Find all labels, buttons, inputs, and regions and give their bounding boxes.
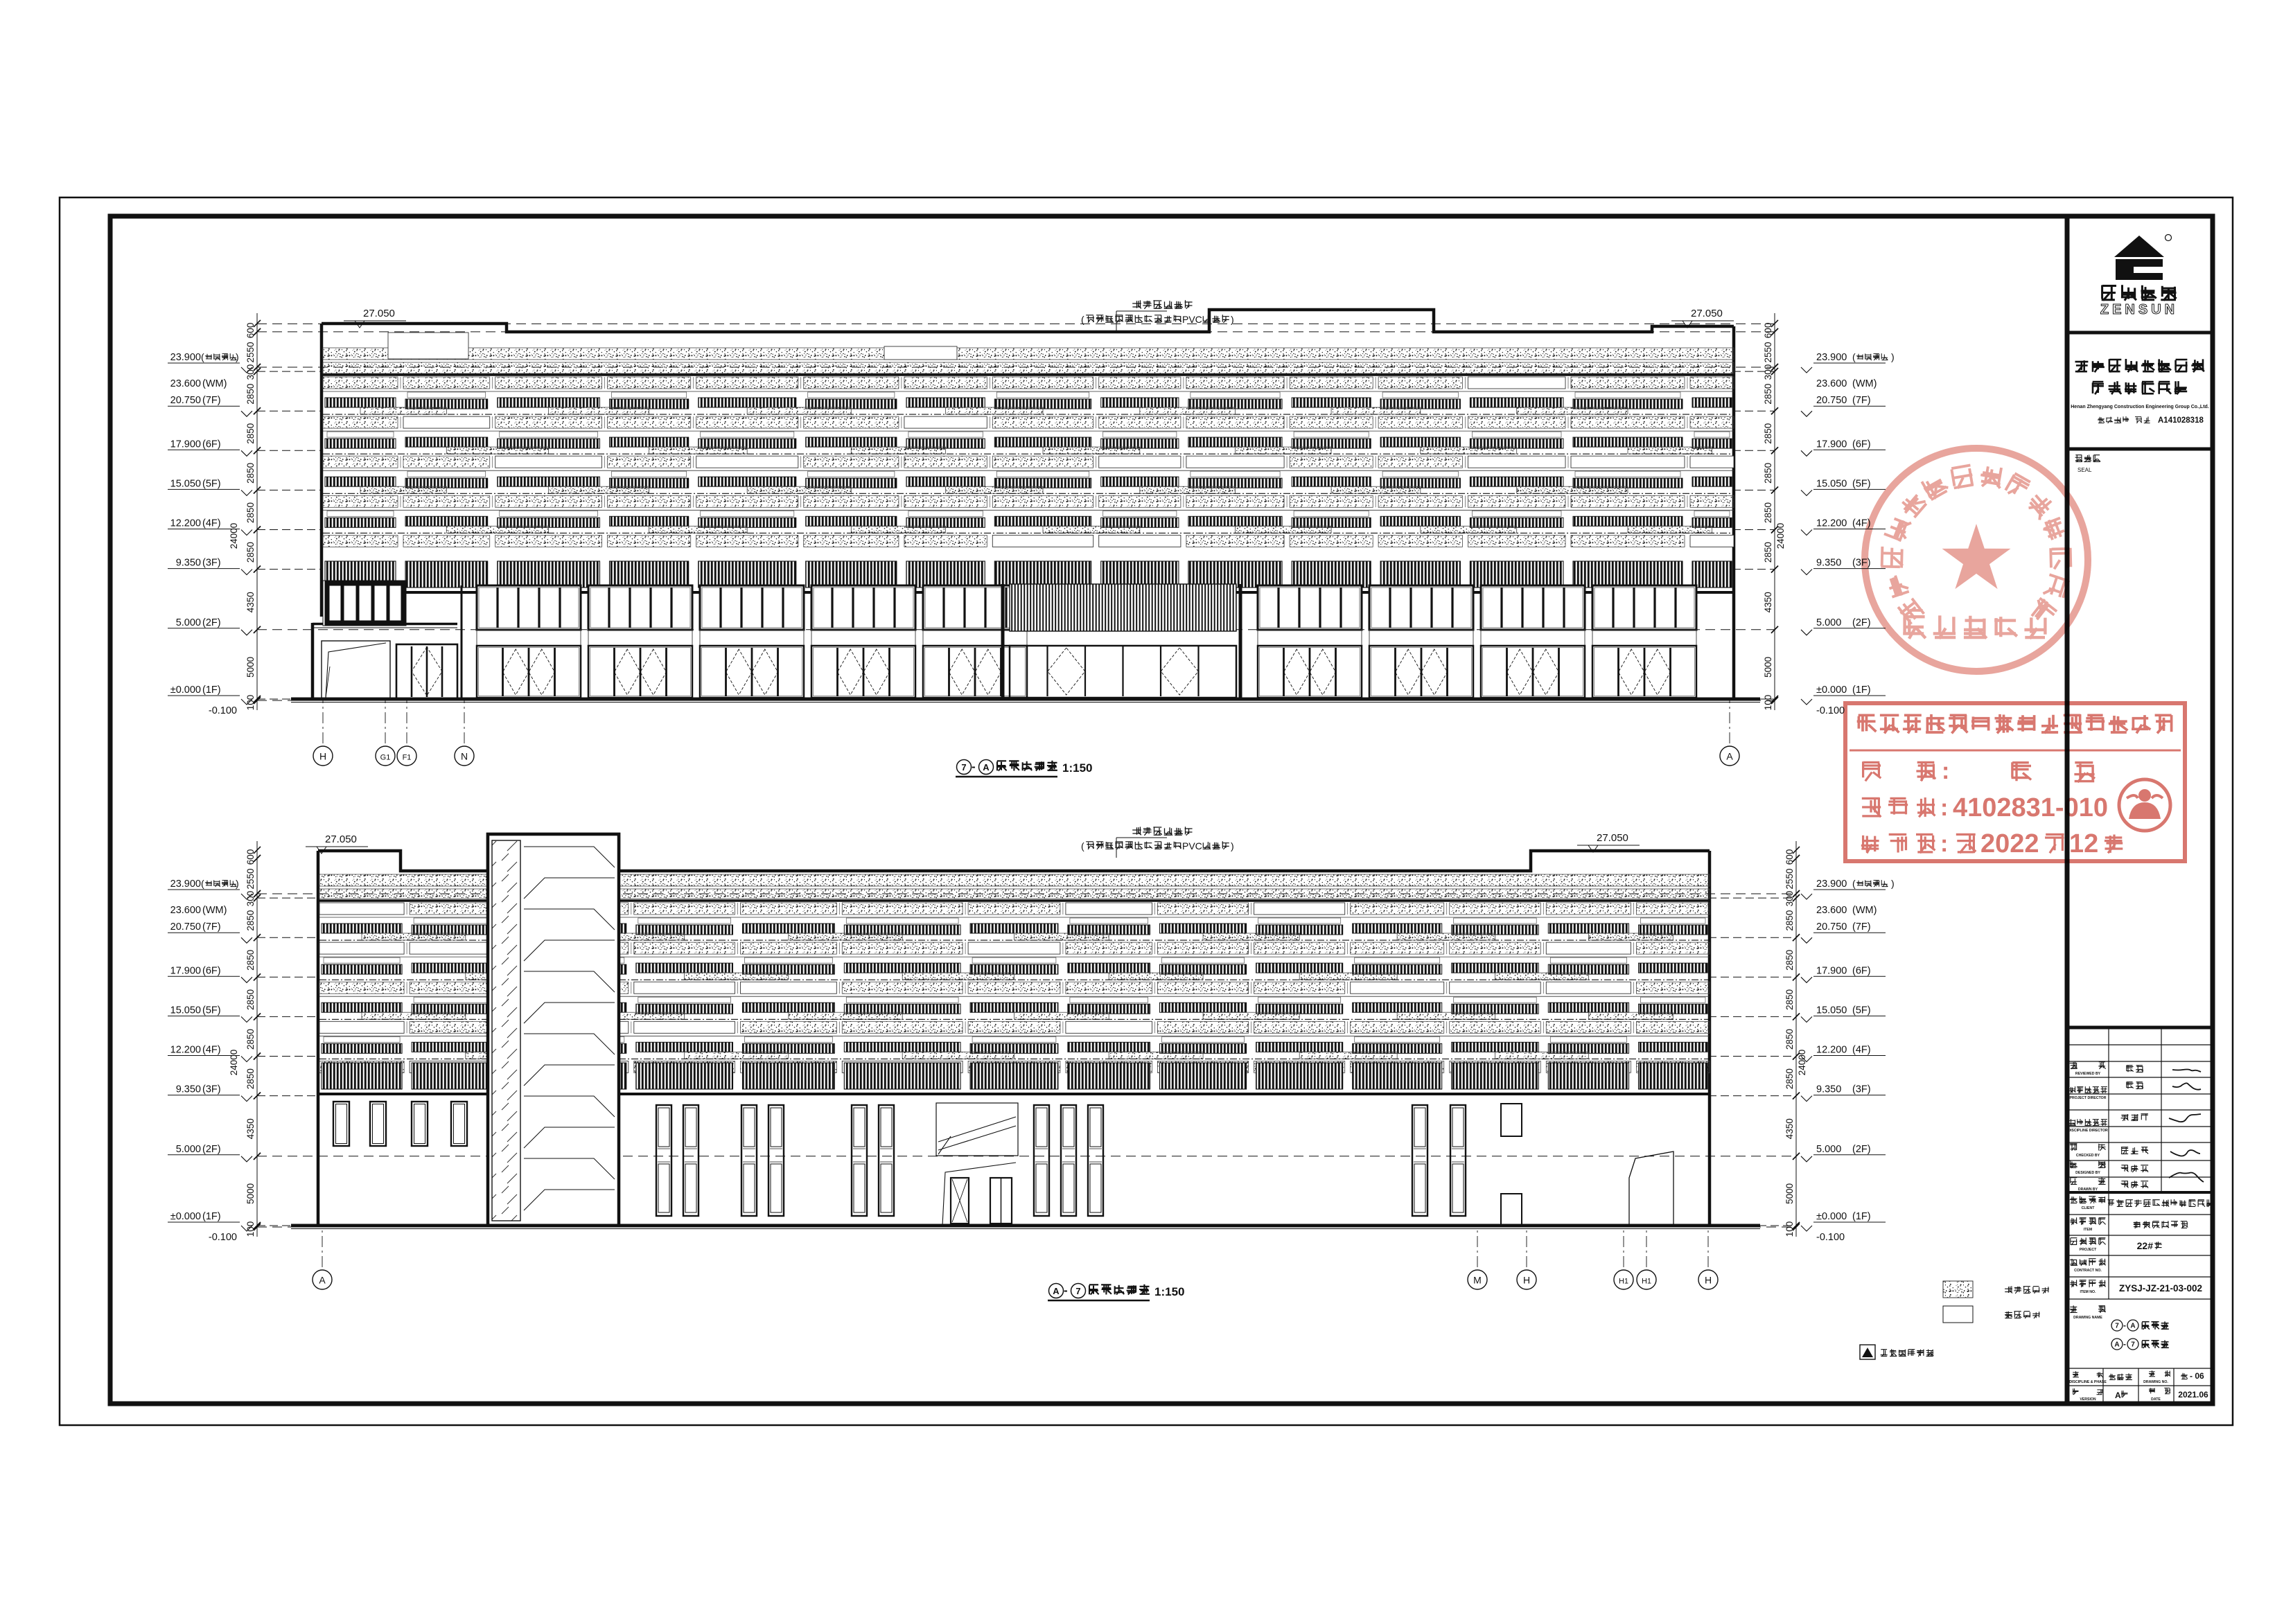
- svg-text:PROJECT: PROJECT: [2080, 1248, 2097, 1252]
- svg-text:PROJECT DIRECTOR: PROJECT DIRECTOR: [2070, 1096, 2107, 1100]
- svg-text:CLIENT: CLIENT: [2082, 1206, 2096, 1210]
- svg-text:15.050: 15.050: [170, 478, 201, 489]
- svg-text:2850: 2850: [245, 989, 256, 1010]
- svg-text:23.900: 23.900: [1816, 879, 1847, 890]
- svg-text:12.200: 12.200: [170, 1045, 201, 1056]
- svg-text:100: 100: [1763, 695, 1773, 711]
- svg-text:): ): [1891, 351, 1895, 362]
- svg-text:23.600: 23.600: [1816, 905, 1847, 916]
- svg-text:): ): [236, 351, 239, 362]
- svg-text:7: 7: [2131, 1341, 2135, 1349]
- svg-text:2850: 2850: [245, 384, 256, 405]
- svg-text:(4F): (4F): [1852, 1045, 1871, 1056]
- svg-text:1:150: 1:150: [1154, 1285, 1184, 1298]
- svg-text:Henan Zhengyang Construction E: Henan Zhengyang Construction Engineering…: [2071, 405, 2209, 409]
- svg-text:(WM): (WM): [202, 905, 227, 916]
- svg-text:2850: 2850: [245, 1068, 256, 1089]
- svg-text:(1F): (1F): [1852, 685, 1871, 696]
- svg-text:(4F): (4F): [202, 1045, 221, 1056]
- svg-text:4350: 4350: [245, 1118, 256, 1139]
- svg-text:ITEM NO.: ITEM NO.: [2080, 1290, 2096, 1294]
- svg-text:-0.100: -0.100: [209, 705, 237, 716]
- svg-text:4350: 4350: [245, 592, 256, 612]
- svg-text:CONTRACT NO.: CONTRACT NO.: [2074, 1269, 2102, 1273]
- svg-text:27.050: 27.050: [325, 833, 357, 845]
- svg-text:7: 7: [2115, 1323, 2119, 1330]
- svg-text:20.750: 20.750: [1816, 395, 1847, 406]
- svg-text:7: 7: [961, 762, 966, 773]
- svg-text:2022: 2022: [1980, 829, 2039, 858]
- svg-text:(2F): (2F): [202, 1144, 221, 1155]
- svg-text:(WM): (WM): [1852, 905, 1877, 916]
- svg-text:24000: 24000: [229, 1050, 239, 1076]
- svg-text:15.050: 15.050: [170, 1005, 201, 1016]
- svg-text:27.050: 27.050: [1691, 308, 1723, 319]
- svg-text:2850: 2850: [245, 542, 256, 563]
- svg-text:N: N: [461, 751, 468, 762]
- svg-text:PVC: PVC: [1182, 840, 1202, 851]
- svg-text:9.350: 9.350: [176, 558, 201, 569]
- svg-text:2550: 2550: [245, 868, 256, 889]
- svg-text:ITEM: ITEM: [2084, 1228, 2092, 1232]
- svg-text:2850: 2850: [245, 502, 256, 523]
- svg-text:2850: 2850: [1763, 384, 1773, 405]
- svg-text:-: -: [2123, 1339, 2126, 1349]
- svg-text:2850: 2850: [245, 423, 256, 444]
- svg-text:17.900: 17.900: [1816, 439, 1847, 450]
- svg-text:27.050: 27.050: [363, 308, 395, 319]
- svg-text:5.000: 5.000: [176, 1144, 201, 1155]
- svg-text:2850: 2850: [1763, 463, 1773, 484]
- svg-text:H: H: [1705, 1275, 1712, 1286]
- svg-text:27.050: 27.050: [1597, 832, 1628, 844]
- svg-text:A: A: [1726, 751, 1733, 762]
- svg-text:(5F): (5F): [202, 478, 221, 489]
- svg-text:A: A: [983, 762, 990, 773]
- svg-text:F1: F1: [403, 754, 412, 762]
- svg-text:12: 12: [2069, 829, 2098, 858]
- svg-text:G1: G1: [380, 754, 391, 762]
- svg-text:- 06: - 06: [2190, 1371, 2204, 1381]
- svg-text:20.750: 20.750: [1816, 921, 1847, 933]
- svg-text:±0.000: ±0.000: [1816, 1211, 1847, 1222]
- svg-text:2850: 2850: [1763, 542, 1773, 563]
- svg-text:600: 600: [1763, 323, 1773, 339]
- svg-text:(WM): (WM): [1852, 378, 1877, 389]
- svg-text:2850: 2850: [245, 950, 256, 971]
- svg-text::: :: [1940, 795, 1948, 821]
- svg-text:(2F): (2F): [202, 617, 221, 628]
- svg-text:(3F): (3F): [202, 1084, 221, 1095]
- svg-text:-: -: [972, 760, 976, 773]
- svg-text:2021.06: 2021.06: [2178, 1390, 2208, 1400]
- svg-text:4102831-010: 4102831-010: [1953, 793, 2108, 822]
- svg-text:9.350: 9.350: [1816, 558, 1841, 569]
- svg-text:4350: 4350: [1784, 1118, 1795, 1139]
- svg-text:22#: 22#: [2137, 1240, 2154, 1251]
- svg-text:CHECKED BY: CHECKED BY: [2076, 1154, 2100, 1158]
- svg-text:2550: 2550: [1784, 868, 1795, 889]
- svg-text:(6F): (6F): [1852, 965, 1871, 976]
- svg-text:(6F): (6F): [202, 439, 221, 450]
- svg-text:17.900: 17.900: [170, 439, 201, 450]
- svg-text:7: 7: [1075, 1286, 1080, 1296]
- svg-text:23.900: 23.900: [1816, 352, 1847, 363]
- svg-text:100: 100: [245, 695, 256, 711]
- svg-text:H1: H1: [1642, 1278, 1651, 1286]
- svg-text:5000: 5000: [1784, 1183, 1795, 1204]
- svg-text:23.900: 23.900: [170, 352, 201, 363]
- svg-text:A: A: [2130, 1323, 2135, 1330]
- svg-text:(2F): (2F): [1852, 617, 1871, 628]
- svg-text:17.900: 17.900: [1816, 965, 1847, 976]
- svg-text:100: 100: [1784, 1221, 1795, 1237]
- svg-text:±0.000: ±0.000: [170, 1211, 201, 1222]
- svg-text:(1F): (1F): [1852, 1211, 1871, 1222]
- svg-text:(: (: [201, 351, 204, 362]
- svg-text:REVIEWED BY: REVIEWED BY: [2075, 1072, 2101, 1076]
- svg-text:DRAWN BY: DRAWN BY: [2078, 1188, 2098, 1192]
- svg-text:2850: 2850: [1763, 502, 1773, 523]
- svg-text:): ): [1891, 878, 1895, 889]
- svg-text:(WM): (WM): [202, 378, 227, 389]
- svg-text:100: 100: [245, 1221, 256, 1237]
- svg-text:(1F): (1F): [202, 685, 221, 696]
- svg-text:A: A: [2115, 1391, 2121, 1400]
- svg-text:24000: 24000: [1775, 523, 1786, 549]
- svg-text:DISCIPLINE DIRECTOR: DISCIPLINE DIRECTOR: [2068, 1129, 2108, 1133]
- svg-text:5000: 5000: [245, 657, 256, 678]
- svg-text:(: (: [1852, 351, 1856, 362]
- svg-text:2850: 2850: [1784, 1029, 1795, 1050]
- svg-text:23.600: 23.600: [1816, 378, 1847, 389]
- svg-text:12.200: 12.200: [1816, 518, 1847, 529]
- svg-text:SEAL: SEAL: [2077, 467, 2092, 473]
- svg-text:A: A: [1053, 1286, 1060, 1296]
- svg-text:VERSION: VERSION: [2080, 1397, 2096, 1402]
- svg-text:600: 600: [245, 323, 256, 339]
- svg-text:-0.100: -0.100: [1816, 1232, 1845, 1243]
- svg-text:-: -: [2123, 1321, 2126, 1330]
- svg-text:(: (: [1081, 314, 1084, 325]
- svg-text:DRAWING NAME: DRAWING NAME: [2073, 1316, 2102, 1320]
- svg-text:±0.000: ±0.000: [170, 685, 201, 696]
- svg-text:15.050: 15.050: [1816, 1005, 1847, 1016]
- svg-text:(2F): (2F): [1852, 1144, 1871, 1155]
- svg-text:23.600: 23.600: [170, 378, 201, 389]
- svg-text:5000: 5000: [245, 1183, 256, 1204]
- svg-text:9.350: 9.350: [1816, 1084, 1841, 1095]
- svg-text:(5F): (5F): [1852, 1005, 1871, 1016]
- svg-text:2850: 2850: [1784, 1068, 1795, 1089]
- svg-text:H: H: [1523, 1275, 1530, 1286]
- svg-text:): ): [1231, 314, 1234, 325]
- svg-text:M: M: [1473, 1275, 1482, 1286]
- svg-text:9.350: 9.350: [176, 1084, 201, 1095]
- svg-text:300: 300: [1784, 891, 1795, 907]
- svg-text:600: 600: [245, 849, 256, 865]
- svg-text:ZENSUN: ZENSUN: [2100, 302, 2178, 317]
- svg-text:2850: 2850: [1784, 950, 1795, 971]
- svg-text:A: A: [319, 1275, 326, 1286]
- svg-text:DISCIPLINE & PHASE: DISCIPLINE & PHASE: [2069, 1380, 2107, 1384]
- svg-text:(4F): (4F): [202, 518, 221, 529]
- svg-text:2850: 2850: [1763, 423, 1773, 444]
- svg-text:(7F): (7F): [202, 921, 221, 933]
- svg-text:A: A: [2114, 1341, 2119, 1349]
- svg-text:24000: 24000: [229, 523, 239, 549]
- svg-text:(5F): (5F): [1852, 478, 1871, 489]
- svg-text:24000: 24000: [1797, 1050, 1807, 1076]
- svg-text:(: (: [201, 878, 204, 889]
- svg-text:23.900: 23.900: [170, 879, 201, 890]
- svg-text:12.200: 12.200: [1816, 1045, 1847, 1056]
- svg-text:(6F): (6F): [202, 965, 221, 976]
- svg-text:17.900: 17.900: [170, 965, 201, 976]
- svg-text:±0.000: ±0.000: [1816, 685, 1847, 696]
- svg-text:5.000: 5.000: [176, 617, 201, 628]
- svg-text:-0.100: -0.100: [1816, 705, 1845, 716]
- svg-text:300: 300: [1763, 364, 1773, 380]
- svg-text:5.000: 5.000: [1816, 617, 1841, 628]
- svg-text::: :: [1940, 831, 1948, 857]
- svg-text:600: 600: [1784, 849, 1795, 865]
- svg-text:(7F): (7F): [1852, 921, 1871, 933]
- svg-text:DATE: DATE: [2151, 1397, 2161, 1402]
- svg-text:12.200: 12.200: [170, 518, 201, 529]
- svg-text:(: (: [1081, 840, 1084, 851]
- svg-text:(3F): (3F): [202, 558, 221, 569]
- svg-text::: :: [1942, 758, 1949, 784]
- svg-text:H: H: [319, 751, 326, 762]
- svg-text:(5F): (5F): [202, 1005, 221, 1016]
- svg-text:DRAWING NO.: DRAWING NO.: [2143, 1380, 2168, 1384]
- svg-text:-0.100: -0.100: [209, 1232, 237, 1243]
- svg-text:(7F): (7F): [1852, 395, 1871, 406]
- svg-text:ZYSJ-JZ-21-03-002: ZYSJ-JZ-21-03-002: [2119, 1283, 2202, 1294]
- svg-text:A141028318: A141028318: [2158, 416, 2204, 425]
- svg-text:15.050: 15.050: [1816, 478, 1847, 489]
- svg-text:2550: 2550: [245, 342, 256, 362]
- svg-text:(7F): (7F): [202, 395, 221, 406]
- svg-text:2850: 2850: [1784, 910, 1795, 931]
- svg-text:(: (: [1852, 878, 1856, 889]
- svg-text:1:150: 1:150: [1062, 761, 1092, 775]
- svg-text:5.000: 5.000: [1816, 1144, 1841, 1155]
- svg-text:-: -: [1064, 1284, 1068, 1297]
- svg-text:(6F): (6F): [1852, 439, 1871, 450]
- svg-text:2850: 2850: [1784, 989, 1795, 1010]
- svg-text:DESIGNED BY: DESIGNED BY: [2075, 1171, 2100, 1175]
- svg-text:20.750: 20.750: [170, 921, 201, 933]
- svg-text:2850: 2850: [245, 910, 256, 931]
- svg-text:(1F): (1F): [202, 1211, 221, 1222]
- svg-text:2550: 2550: [1763, 342, 1773, 362]
- svg-text:23.600: 23.600: [170, 905, 201, 916]
- svg-text:): ): [1231, 840, 1234, 851]
- svg-text:2850: 2850: [245, 463, 256, 484]
- svg-text:H1: H1: [1619, 1278, 1628, 1286]
- svg-text:(3F): (3F): [1852, 1084, 1871, 1095]
- svg-text:): ): [236, 878, 239, 889]
- svg-text:4350: 4350: [1763, 592, 1773, 612]
- svg-text:2850: 2850: [245, 1029, 256, 1050]
- svg-text:5000: 5000: [1763, 657, 1773, 678]
- svg-text:PVC: PVC: [1182, 314, 1202, 325]
- svg-text:20.750: 20.750: [170, 395, 201, 406]
